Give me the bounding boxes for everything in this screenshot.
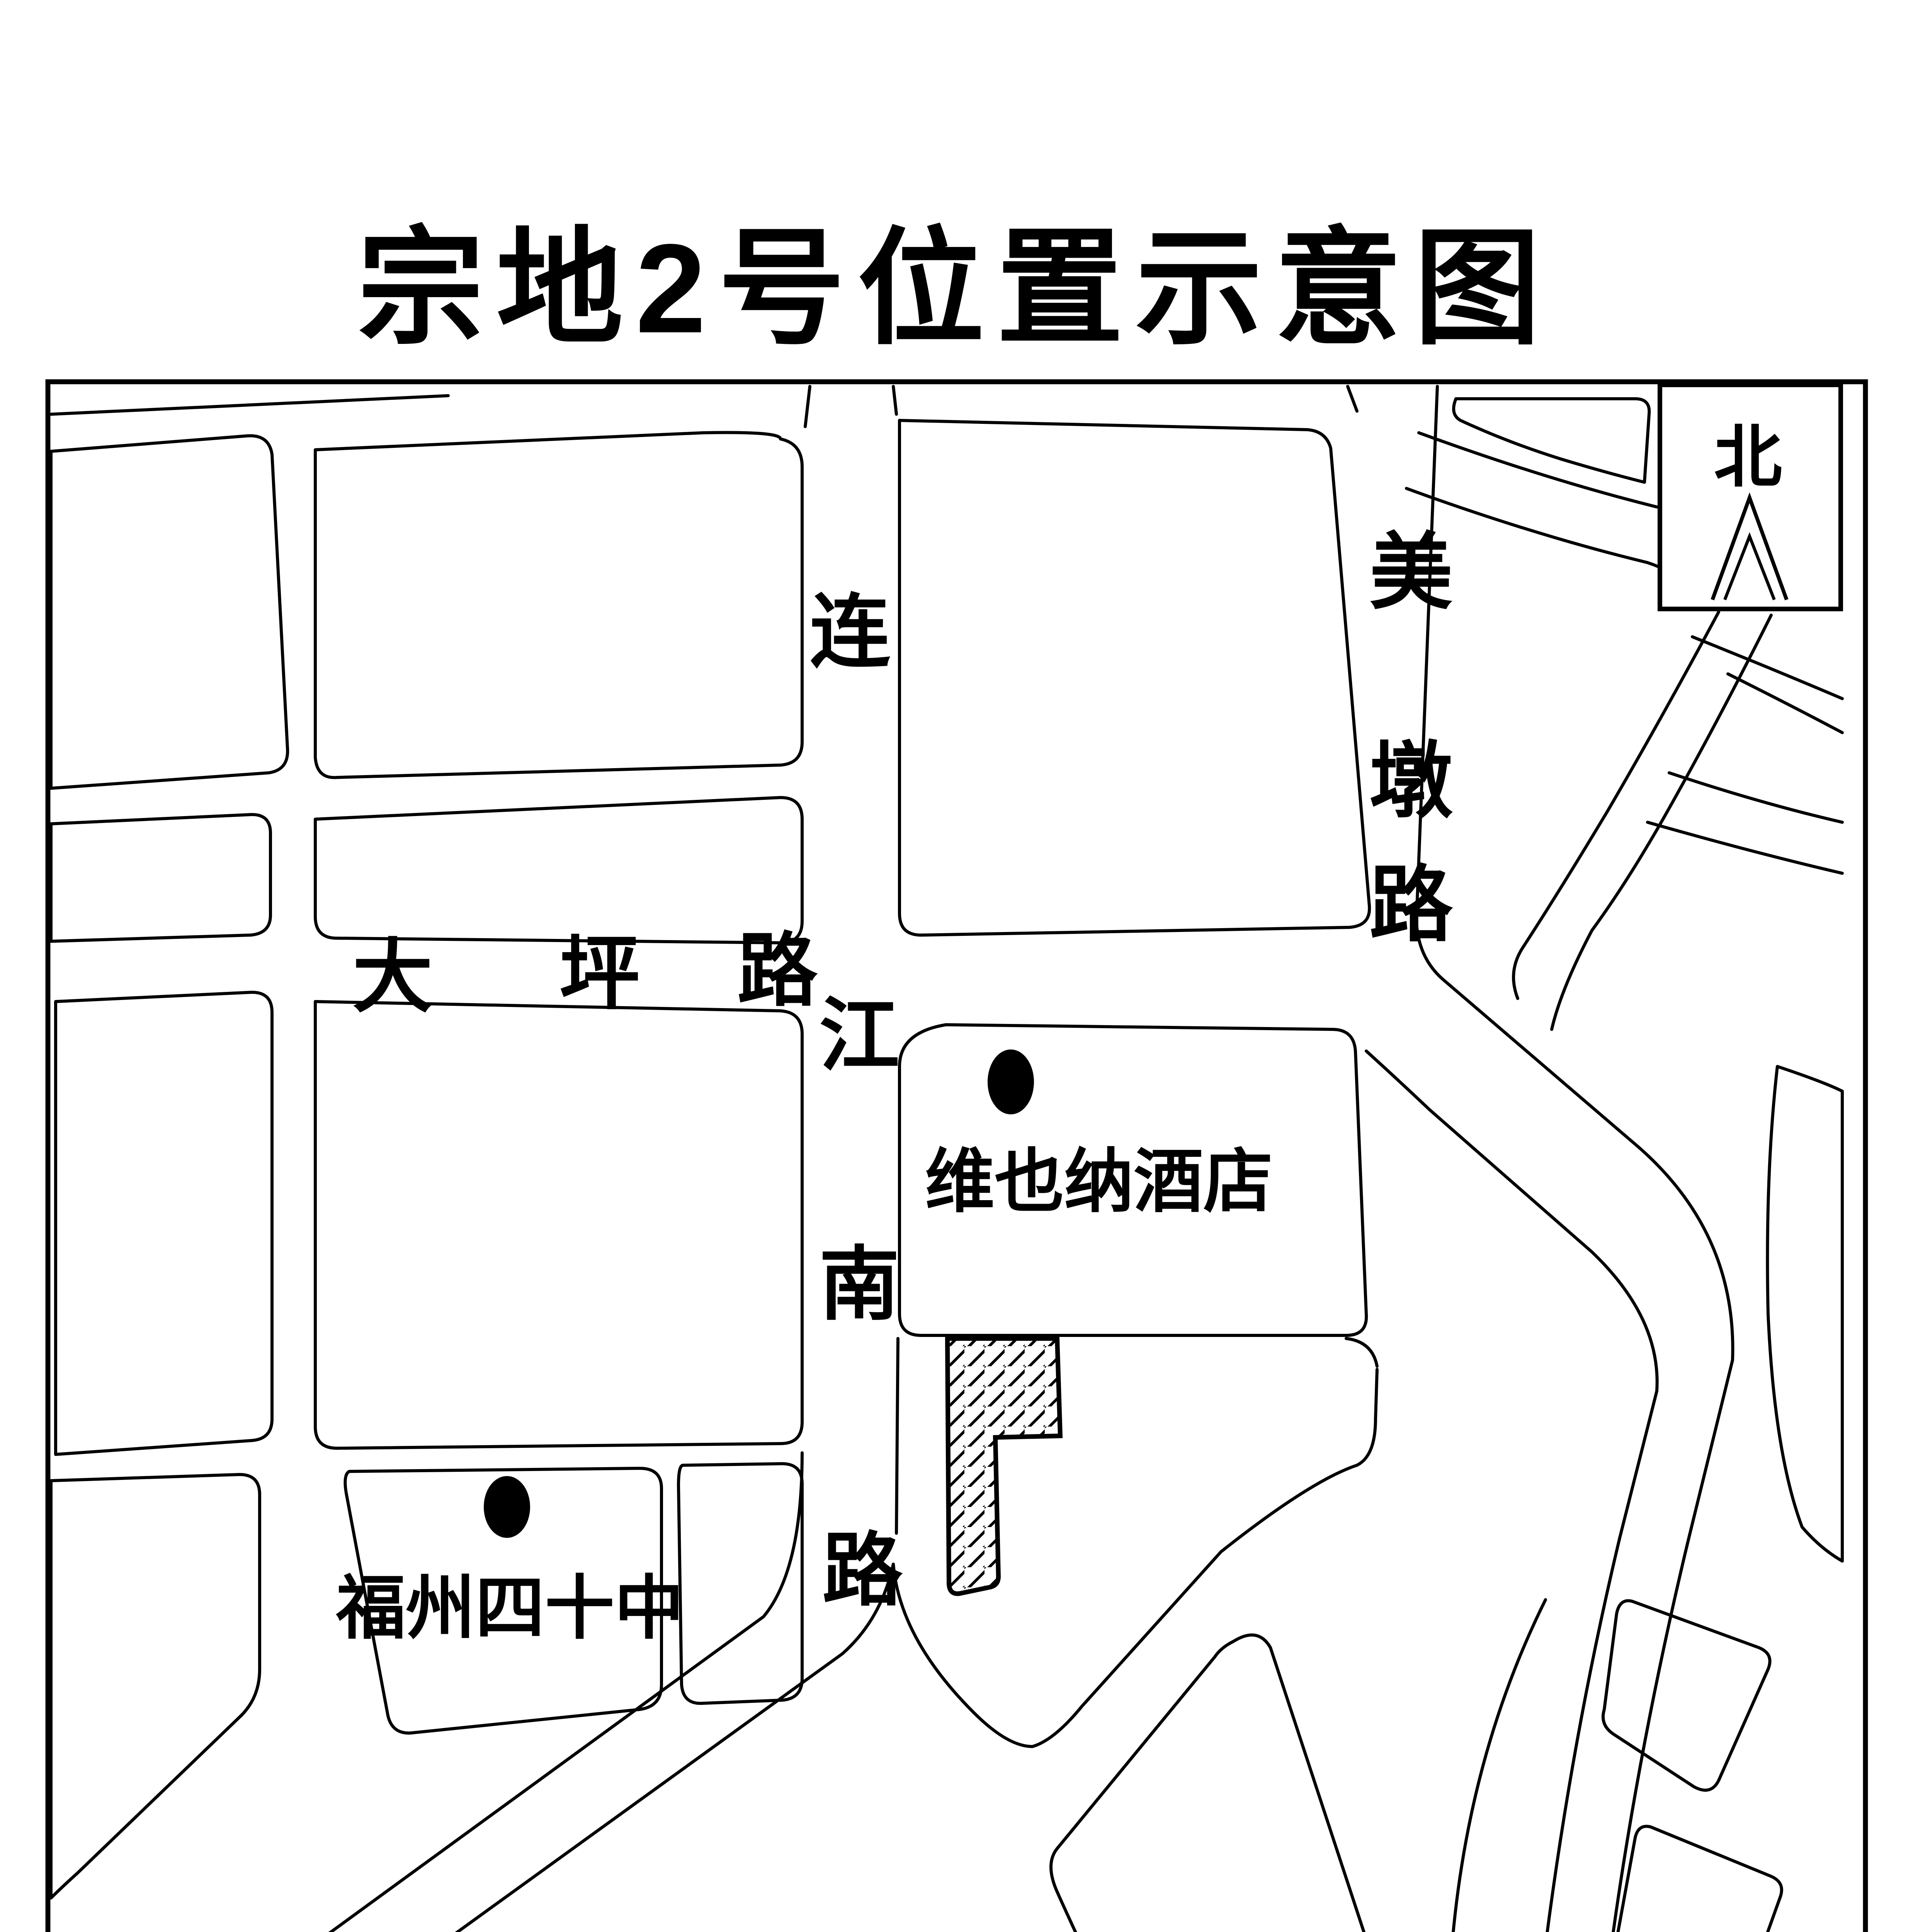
- road-label-lianjiangnan: 连 江 南 路: [810, 588, 903, 1616]
- north-indicator: 北: [1660, 385, 1841, 609]
- road-char: 大: [352, 932, 433, 1022]
- city-block: [1454, 399, 1649, 482]
- road-edge: [51, 396, 448, 414]
- road-char: 江: [819, 991, 899, 1081]
- road-edge: [1348, 386, 1357, 411]
- city-block: [51, 1475, 260, 1898]
- road-label-daping: 大 坪 路: [352, 926, 818, 1022]
- road-edge: [1552, 615, 1771, 1029]
- road-char: 连: [810, 588, 890, 677]
- road-char: 墩: [1369, 734, 1453, 828]
- road-edge: [1728, 674, 1842, 733]
- road-edge: [896, 1338, 898, 1533]
- city-block: [1767, 1066, 1842, 1561]
- road-edge: [1346, 1338, 1377, 1366]
- page-title: 宗地2号位置示意图: [357, 218, 1553, 359]
- city-block: [315, 798, 802, 943]
- parcel-location-map: 宗地2号位置示意图: [0, 0, 1918, 1932]
- road-edge: [1448, 1600, 1546, 1932]
- road-char: 美: [1369, 526, 1453, 619]
- school-label: 福州四十中: [336, 1570, 684, 1647]
- road-label-meidun: 美 墩 路: [1369, 526, 1453, 951]
- road-edge: [805, 386, 810, 427]
- city-block: [51, 436, 287, 788]
- city-block: [899, 420, 1369, 935]
- road-edge: [1366, 1051, 1657, 1932]
- north-label: 北: [1714, 420, 1782, 495]
- road-char: 坪: [559, 929, 640, 1019]
- city-block: [1616, 1827, 1782, 1932]
- hotel-label: 维也纳酒店: [925, 1143, 1273, 1221]
- road-char: 南: [819, 1240, 899, 1330]
- map-page: 宗地2号位置示意图: [0, 0, 1918, 1932]
- hotel-poi-dot: [988, 1049, 1034, 1114]
- city-block: [1603, 1601, 1770, 1790]
- road-edge: [1648, 822, 1842, 873]
- road-edge: [1692, 637, 1842, 699]
- road-edge: [893, 386, 896, 414]
- road-char: 路: [737, 926, 818, 1016]
- road-char: 路: [1369, 858, 1453, 951]
- road-edge: [1669, 773, 1842, 822]
- road-char: 路: [822, 1526, 903, 1616]
- city-block: [315, 432, 802, 777]
- school-poi-dot: [484, 1476, 530, 1538]
- city-block: [56, 992, 272, 1454]
- parcel-2-hatched-area: [947, 1338, 1060, 1594]
- city-block: [315, 1002, 802, 1448]
- road-edge: [1513, 612, 1719, 998]
- city-block: [51, 815, 270, 941]
